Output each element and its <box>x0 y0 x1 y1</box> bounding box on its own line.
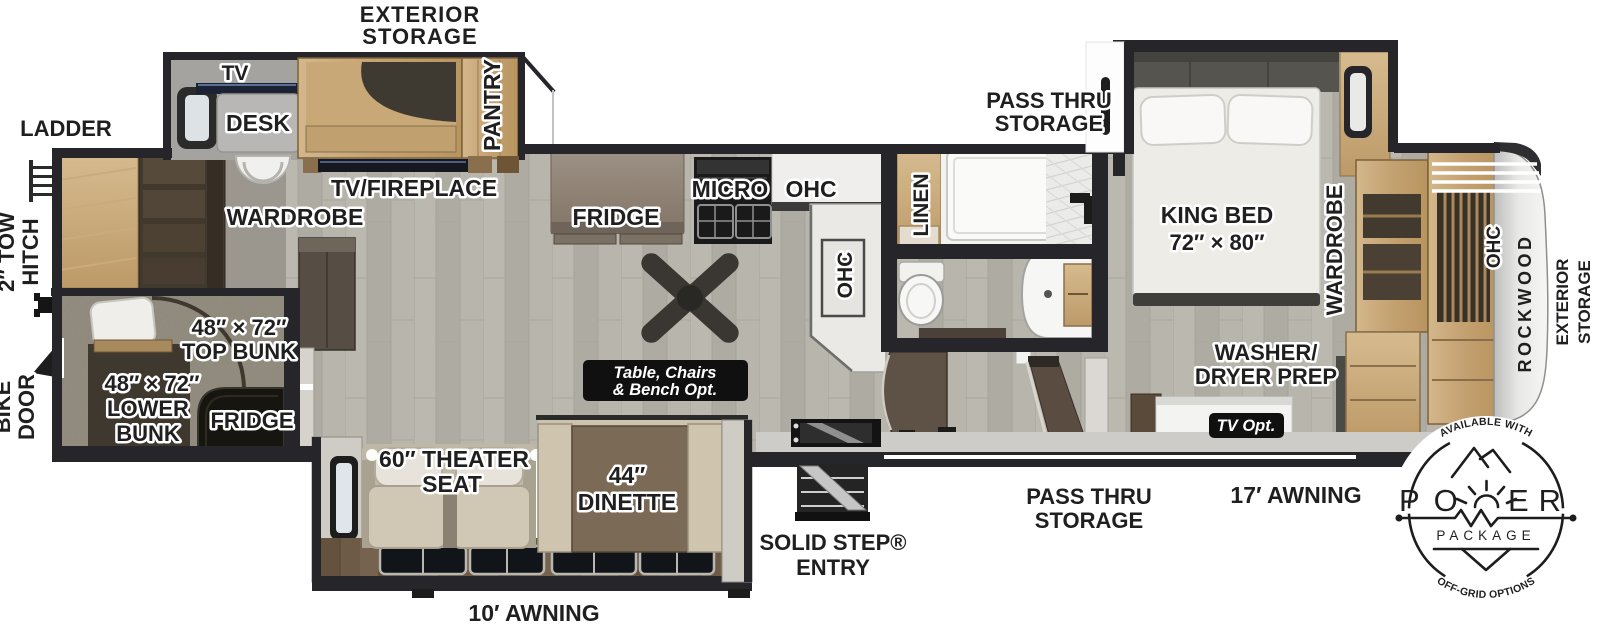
svg-text:MICRO: MICRO <box>692 176 769 202</box>
svg-text:44″: 44″ <box>609 462 646 488</box>
svg-text:2″ TOW: 2″ TOW <box>0 212 19 292</box>
svg-text:TV: TV <box>222 62 249 85</box>
svg-text:WARDROBE: WARDROBE <box>227 204 364 230</box>
svg-text:WARDROBE: WARDROBE <box>1322 185 1347 316</box>
svg-text:ROCKWOOD: ROCKWOOD <box>1515 234 1535 373</box>
svg-text:KING BED: KING BED <box>1161 202 1273 228</box>
svg-text:72″ × 80″: 72″ × 80″ <box>1169 230 1265 255</box>
svg-text:60″ THEATER: 60″ THEATER <box>379 446 529 472</box>
svg-text:PO: PO <box>1399 483 1472 518</box>
svg-text:SOLID STEP®: SOLID STEP® <box>759 530 906 555</box>
svg-text:FRIDGE: FRIDGE <box>573 204 660 230</box>
svg-text:PASS THRU: PASS THRU <box>986 88 1112 113</box>
svg-text:BIKE: BIKE <box>0 381 15 434</box>
svg-text:TOP BUNK: TOP BUNK <box>182 339 296 364</box>
svg-text:SEAT: SEAT <box>422 471 482 497</box>
svg-text:FRIDGE: FRIDGE <box>210 408 293 433</box>
svg-text:LINEN: LINEN <box>910 174 933 237</box>
svg-text:PANTRY: PANTRY <box>479 59 505 151</box>
svg-text:HITCH: HITCH <box>18 218 43 285</box>
svg-text:OHC: OHC <box>1484 226 1505 269</box>
svg-text:48″ × 72″: 48″ × 72″ <box>104 371 200 396</box>
svg-text:STORAGE: STORAGE <box>362 24 477 49</box>
svg-text:PASS THRU: PASS THRU <box>1026 484 1152 509</box>
svg-text:& Bench Opt.: & Bench Opt. <box>613 381 718 399</box>
svg-text:DESK: DESK <box>226 110 290 136</box>
svg-text:STORAGE: STORAGE <box>1035 508 1143 533</box>
svg-text:LOWER: LOWER <box>107 396 189 421</box>
svg-text:17′ AWNING: 17′ AWNING <box>1230 482 1361 508</box>
svg-text:DINETTE: DINETTE <box>578 489 676 515</box>
svg-text:PACKAGE: PACKAGE <box>1436 528 1535 543</box>
svg-text:EXTERIOR: EXTERIOR <box>1553 259 1572 346</box>
svg-text:10′ AWNING: 10′ AWNING <box>468 600 599 625</box>
svg-text:OHC: OHC <box>785 176 836 202</box>
svg-text:STORAGE: STORAGE <box>1575 260 1594 344</box>
svg-text:DRYER PREP: DRYER PREP <box>1195 364 1337 389</box>
svg-text:TV/FIREPLACE: TV/FIREPLACE <box>331 175 497 201</box>
svg-text:ENTRY: ENTRY <box>796 555 870 580</box>
svg-text:ER: ER <box>1508 483 1571 518</box>
svg-text:BUNK: BUNK <box>116 421 180 446</box>
svg-text:WASHER/: WASHER/ <box>1215 340 1318 365</box>
svg-text:DOOR: DOOR <box>14 374 39 440</box>
svg-text:LADDER: LADDER <box>20 116 112 141</box>
svg-text:Table, Chairs: Table, Chairs <box>613 364 716 382</box>
svg-text:OHC: OHC <box>834 252 857 299</box>
svg-text:TV Opt.: TV Opt. <box>1217 417 1276 435</box>
svg-text:STORAGE: STORAGE <box>995 111 1103 136</box>
svg-text:48″ × 72″: 48″ × 72″ <box>191 315 287 340</box>
